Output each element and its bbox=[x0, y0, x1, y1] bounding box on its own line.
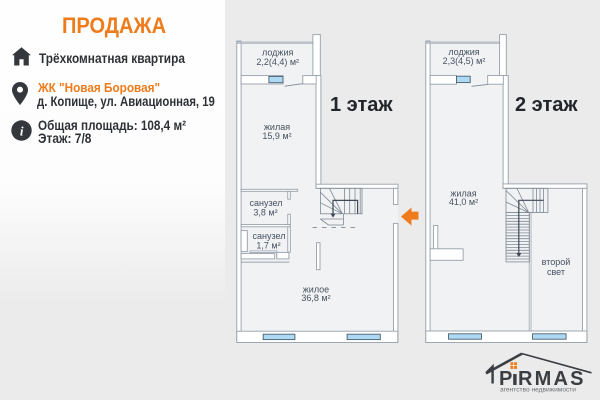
svg-text:агентство недвижимости: агентство недвижимости bbox=[500, 387, 576, 394]
svg-text:3,8 м²: 3,8 м² bbox=[253, 208, 277, 218]
svg-text:1,7 м²: 1,7 м² bbox=[256, 241, 280, 251]
svg-text:санузел: санузел bbox=[253, 231, 286, 241]
svg-text:41,0 м²: 41,0 м² bbox=[449, 197, 478, 207]
svg-text:свет: свет bbox=[547, 267, 565, 277]
svg-text:2,3(4,5) м²: 2,3(4,5) м² bbox=[443, 56, 486, 66]
svg-text:второй: второй bbox=[542, 257, 571, 267]
svg-text:санузел: санузел bbox=[250, 198, 283, 208]
svg-text:15,9 м²: 15,9 м² bbox=[262, 131, 291, 141]
svg-text:2,2(4,4) м²: 2,2(4,4) м² bbox=[256, 57, 299, 67]
svg-text:36,8 м²: 36,8 м² bbox=[301, 293, 330, 303]
